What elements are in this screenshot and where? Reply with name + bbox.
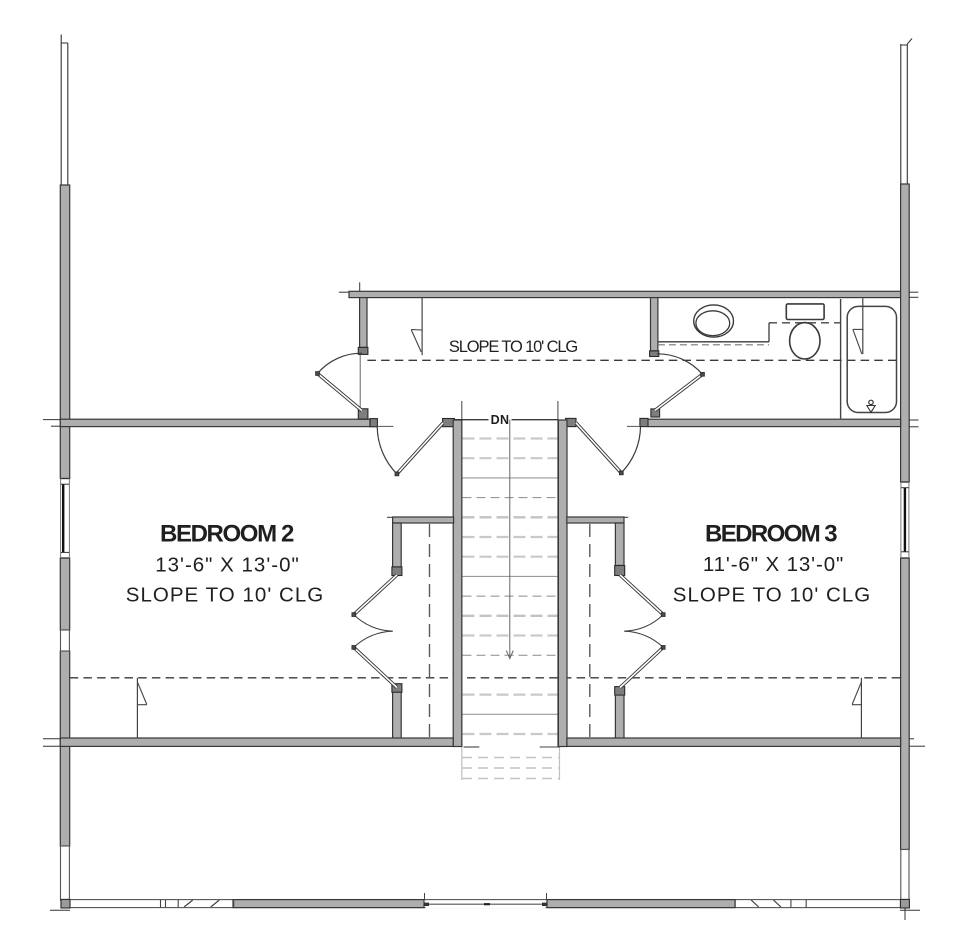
svg-text:BEDROOM 2: BEDROOM 2 [160, 521, 294, 548]
svg-text:SLOPE TO 10' CLG: SLOPE TO 10' CLG [449, 338, 577, 356]
svg-text:13'-6" X 13'-0": 13'-6" X 13'-0" [155, 554, 300, 577]
svg-text:11'-6" X 13'-0": 11'-6" X 13'-0" [703, 553, 844, 576]
svg-text:DN: DN [491, 413, 510, 427]
svg-text:SLOPE TO 10' CLG: SLOPE TO 10' CLG [673, 584, 872, 607]
svg-text:SLOPE TO 10' CLG: SLOPE TO 10' CLG [126, 584, 325, 607]
svg-text:BEDROOM 3: BEDROOM 3 [705, 521, 837, 548]
